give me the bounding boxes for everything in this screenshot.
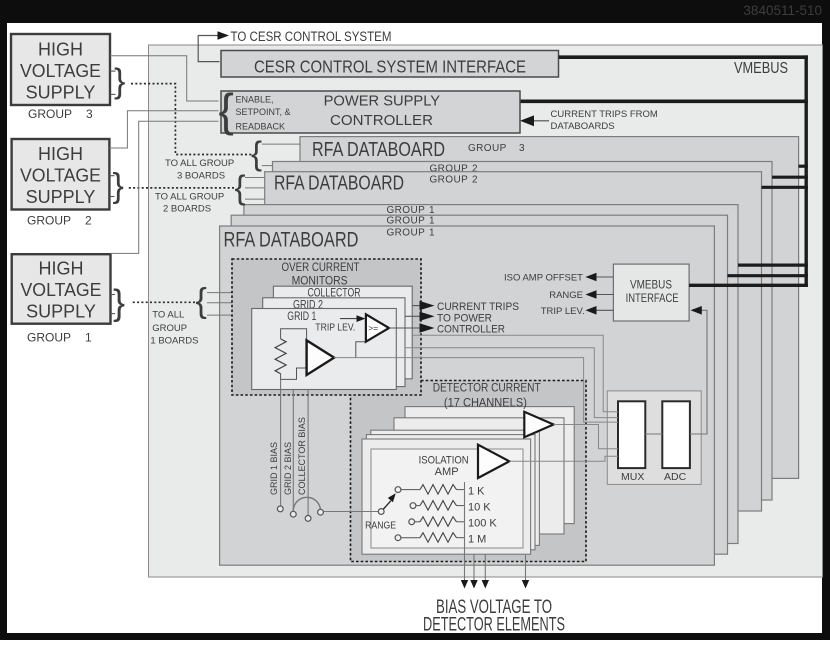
- svg-text:ISO AMP OFFSET: ISO AMP OFFSET: [504, 273, 583, 284]
- svg-text:VOLTAGE: VOLTAGE: [21, 280, 102, 300]
- svg-text:{: {: [219, 84, 234, 136]
- svg-text:>=: >=: [368, 323, 378, 333]
- svg-text:HIGH: HIGH: [38, 144, 83, 164]
- svg-text:RFA DATABOARD: RFA DATABOARD: [312, 139, 445, 161]
- svg-text:RFA DATABOARD: RFA DATABOARD: [274, 173, 404, 195]
- svg-text:MUX: MUX: [621, 471, 644, 483]
- svg-text:GRID 1: GRID 1: [287, 311, 316, 323]
- svg-text:GROUP: GROUP: [468, 143, 507, 154]
- svg-text:{: {: [251, 134, 262, 171]
- svg-text:DETECTOR CURRENT: DETECTOR CURRENT: [433, 381, 542, 395]
- svg-text:TO ALL: TO ALL: [152, 310, 184, 321]
- svg-text:2: 2: [472, 175, 478, 186]
- svg-text:3 BOARDS: 3 BOARDS: [177, 171, 225, 182]
- svg-text:HIGH: HIGH: [38, 40, 83, 60]
- svg-text:SUPPLY: SUPPLY: [26, 187, 96, 207]
- svg-text:(17 CHANNELS): (17 CHANNELS): [444, 397, 527, 409]
- svg-text:3: 3: [86, 107, 93, 121]
- svg-text:DETECTOR ELEMENTS: DETECTOR ELEMENTS: [423, 615, 565, 636]
- svg-text:AMP: AMP: [435, 466, 459, 478]
- svg-text:POWER SUPPLY: POWER SUPPLY: [324, 93, 441, 110]
- svg-text:1 K: 1 K: [468, 485, 485, 497]
- svg-text:GRID 1 BIAS: GRID 1 BIAS: [269, 442, 279, 495]
- svg-text:VOLTAGE: VOLTAGE: [20, 61, 101, 81]
- svg-text:3840511-510: 3840511-510: [743, 3, 822, 18]
- svg-text:1: 1: [85, 331, 92, 345]
- svg-text:}: }: [114, 63, 125, 101]
- svg-text:TO ALL GROUP: TO ALL GROUP: [155, 192, 224, 203]
- svg-text:}: }: [113, 167, 124, 205]
- svg-text:RFA DATABOARD: RFA DATABOARD: [224, 228, 359, 251]
- svg-text:VMEBUS: VMEBUS: [734, 60, 788, 77]
- svg-text:CURRENT TRIPS FROM: CURRENT TRIPS FROM: [551, 109, 658, 120]
- svg-text:SUPPLY: SUPPLY: [26, 302, 96, 322]
- svg-text:ADC: ADC: [664, 471, 687, 483]
- svg-text:TO ALL GROUP: TO ALL GROUP: [165, 158, 234, 169]
- svg-text:GRID 2 BIAS: GRID 2 BIAS: [283, 442, 293, 495]
- svg-text:MONITORS: MONITORS: [292, 275, 348, 287]
- svg-text:HIGH: HIGH: [39, 259, 84, 279]
- svg-text:COLLECTOR BIAS: COLLECTOR BIAS: [297, 417, 307, 495]
- svg-text:VMEBUS: VMEBUS: [630, 278, 672, 292]
- svg-text:GROUP: GROUP: [430, 175, 469, 186]
- svg-text:DATABOARDS: DATABOARDS: [551, 121, 615, 132]
- svg-text:TRIP LEV.: TRIP LEV.: [541, 306, 585, 317]
- svg-text:TO POWER: TO POWER: [437, 312, 492, 324]
- svg-text:ISOLATION: ISOLATION: [419, 455, 469, 467]
- svg-text:2: 2: [85, 214, 92, 228]
- svg-text:100 K: 100 K: [468, 517, 497, 529]
- svg-text:1 BOARDS: 1 BOARDS: [150, 336, 198, 347]
- svg-text:1: 1: [429, 216, 435, 227]
- svg-text:SETPOINT, &: SETPOINT, &: [236, 107, 291, 117]
- svg-text:TRIP LEV.: TRIP LEV.: [315, 322, 355, 334]
- svg-text:}: }: [113, 282, 125, 323]
- svg-text:GROUP: GROUP: [387, 205, 426, 216]
- svg-text:1: 1: [429, 228, 435, 239]
- svg-text:READBACK: READBACK: [236, 122, 286, 132]
- svg-text:1 M: 1 M: [468, 533, 486, 545]
- svg-text:RANGE: RANGE: [549, 290, 583, 301]
- svg-text:CONTROLLER: CONTROLLER: [330, 112, 433, 129]
- svg-text:GROUP: GROUP: [27, 214, 71, 228]
- svg-text:OVER CURRENT: OVER CURRENT: [282, 262, 360, 274]
- svg-text:RANGE: RANGE: [365, 520, 396, 532]
- svg-text:CESR CONTROL SYSTEM INTERFACE: CESR CONTROL SYSTEM INTERFACE: [254, 57, 526, 77]
- svg-text:SUPPLY: SUPPLY: [26, 83, 96, 103]
- svg-text:GROUP: GROUP: [387, 228, 426, 239]
- svg-text:GROUP: GROUP: [27, 331, 71, 345]
- svg-text:1: 1: [429, 205, 435, 216]
- svg-text:CURRENT TRIPS: CURRENT TRIPS: [437, 301, 519, 313]
- svg-text:10 K: 10 K: [468, 501, 491, 513]
- svg-text:GROUP: GROUP: [28, 107, 72, 121]
- svg-text:ENABLE,: ENABLE,: [236, 94, 274, 104]
- svg-text:GROUP: GROUP: [152, 323, 187, 334]
- svg-text:CONTROLLER: CONTROLLER: [437, 324, 505, 336]
- svg-text:{: {: [235, 168, 246, 205]
- svg-text:GROUP: GROUP: [387, 216, 426, 227]
- svg-text:INTERFACE: INTERFACE: [626, 291, 679, 305]
- svg-text:VOLTAGE: VOLTAGE: [20, 166, 101, 186]
- svg-text:TO CESR CONTROL SYSTEM: TO CESR CONTROL SYSTEM: [231, 29, 392, 44]
- svg-text:{: {: [196, 282, 207, 320]
- svg-text:3: 3: [519, 143, 525, 154]
- svg-text:2 BOARDS: 2 BOARDS: [163, 204, 211, 215]
